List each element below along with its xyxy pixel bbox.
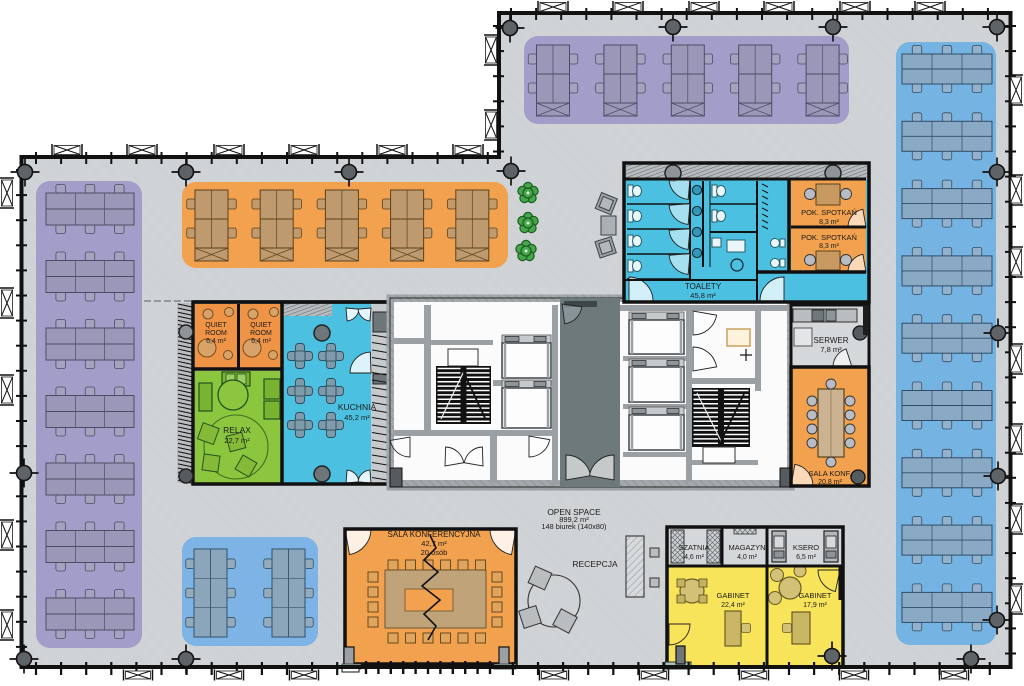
svg-text:ROOM: ROOM: [250, 330, 272, 337]
svg-text:KSERO: KSERO: [793, 543, 819, 552]
svg-text:QUIET: QUIET: [250, 322, 272, 329]
svg-text:POK. SPOTKAŃ: POK. SPOTKAŃ: [801, 233, 857, 242]
svg-text:POK. SPOTKAŃ: POK. SPOTKAŃ: [801, 208, 857, 217]
svg-text:4,0 m²: 4,0 m²: [737, 554, 758, 561]
svg-text:8,3 m²: 8,3 m²: [819, 219, 840, 226]
svg-text:22,4 m²: 22,4 m²: [721, 602, 745, 609]
svg-text:TOALETY: TOALETY: [685, 282, 722, 291]
svg-text:20,8 m²: 20,8 m²: [818, 479, 842, 486]
svg-text:GABINET: GABINET: [717, 591, 750, 600]
svg-text:17,9 m²: 17,9 m²: [803, 602, 827, 609]
svg-text:SZATNIA: SZATNIA: [678, 543, 709, 552]
svg-text:8,3 m²: 8,3 m²: [819, 243, 840, 250]
svg-text:7,8 m²: 7,8 m²: [820, 345, 842, 354]
svg-text:6,5 m²: 6,5 m²: [796, 554, 817, 561]
svg-text:MAGAZYN: MAGAZYN: [728, 543, 765, 552]
svg-text:SERWER: SERWER: [814, 336, 849, 345]
svg-text:20 osób: 20 osób: [421, 548, 448, 557]
svg-text:RELAX: RELAX: [223, 425, 251, 435]
svg-text:45,8 m²: 45,8 m²: [690, 291, 716, 300]
svg-text:KUCHNIA: KUCHNIA: [338, 402, 377, 412]
svg-text:22,7 m²: 22,7 m²: [224, 436, 250, 445]
svg-text:4,6 m²: 4,6 m²: [684, 554, 705, 561]
svg-text:6,4 m²: 6,4 m²: [206, 338, 227, 345]
svg-text:SALA KONFERENCYJNA: SALA KONFERENCYJNA: [388, 530, 482, 539]
svg-text:QUIET: QUIET: [205, 322, 227, 329]
svg-text:148 biurek (140x80): 148 biurek (140x80): [542, 522, 607, 531]
svg-text:42,7 m²: 42,7 m²: [421, 539, 447, 548]
svg-text:45,2 m²: 45,2 m²: [344, 413, 370, 422]
svg-text:GABINET: GABINET: [799, 591, 832, 600]
svg-text:RECEPCJA: RECEPCJA: [572, 559, 618, 569]
svg-text:SALA KONF.: SALA KONF.: [809, 469, 852, 478]
svg-text:ROOM: ROOM: [205, 330, 227, 337]
svg-text:6,4 m²: 6,4 m²: [251, 338, 272, 345]
